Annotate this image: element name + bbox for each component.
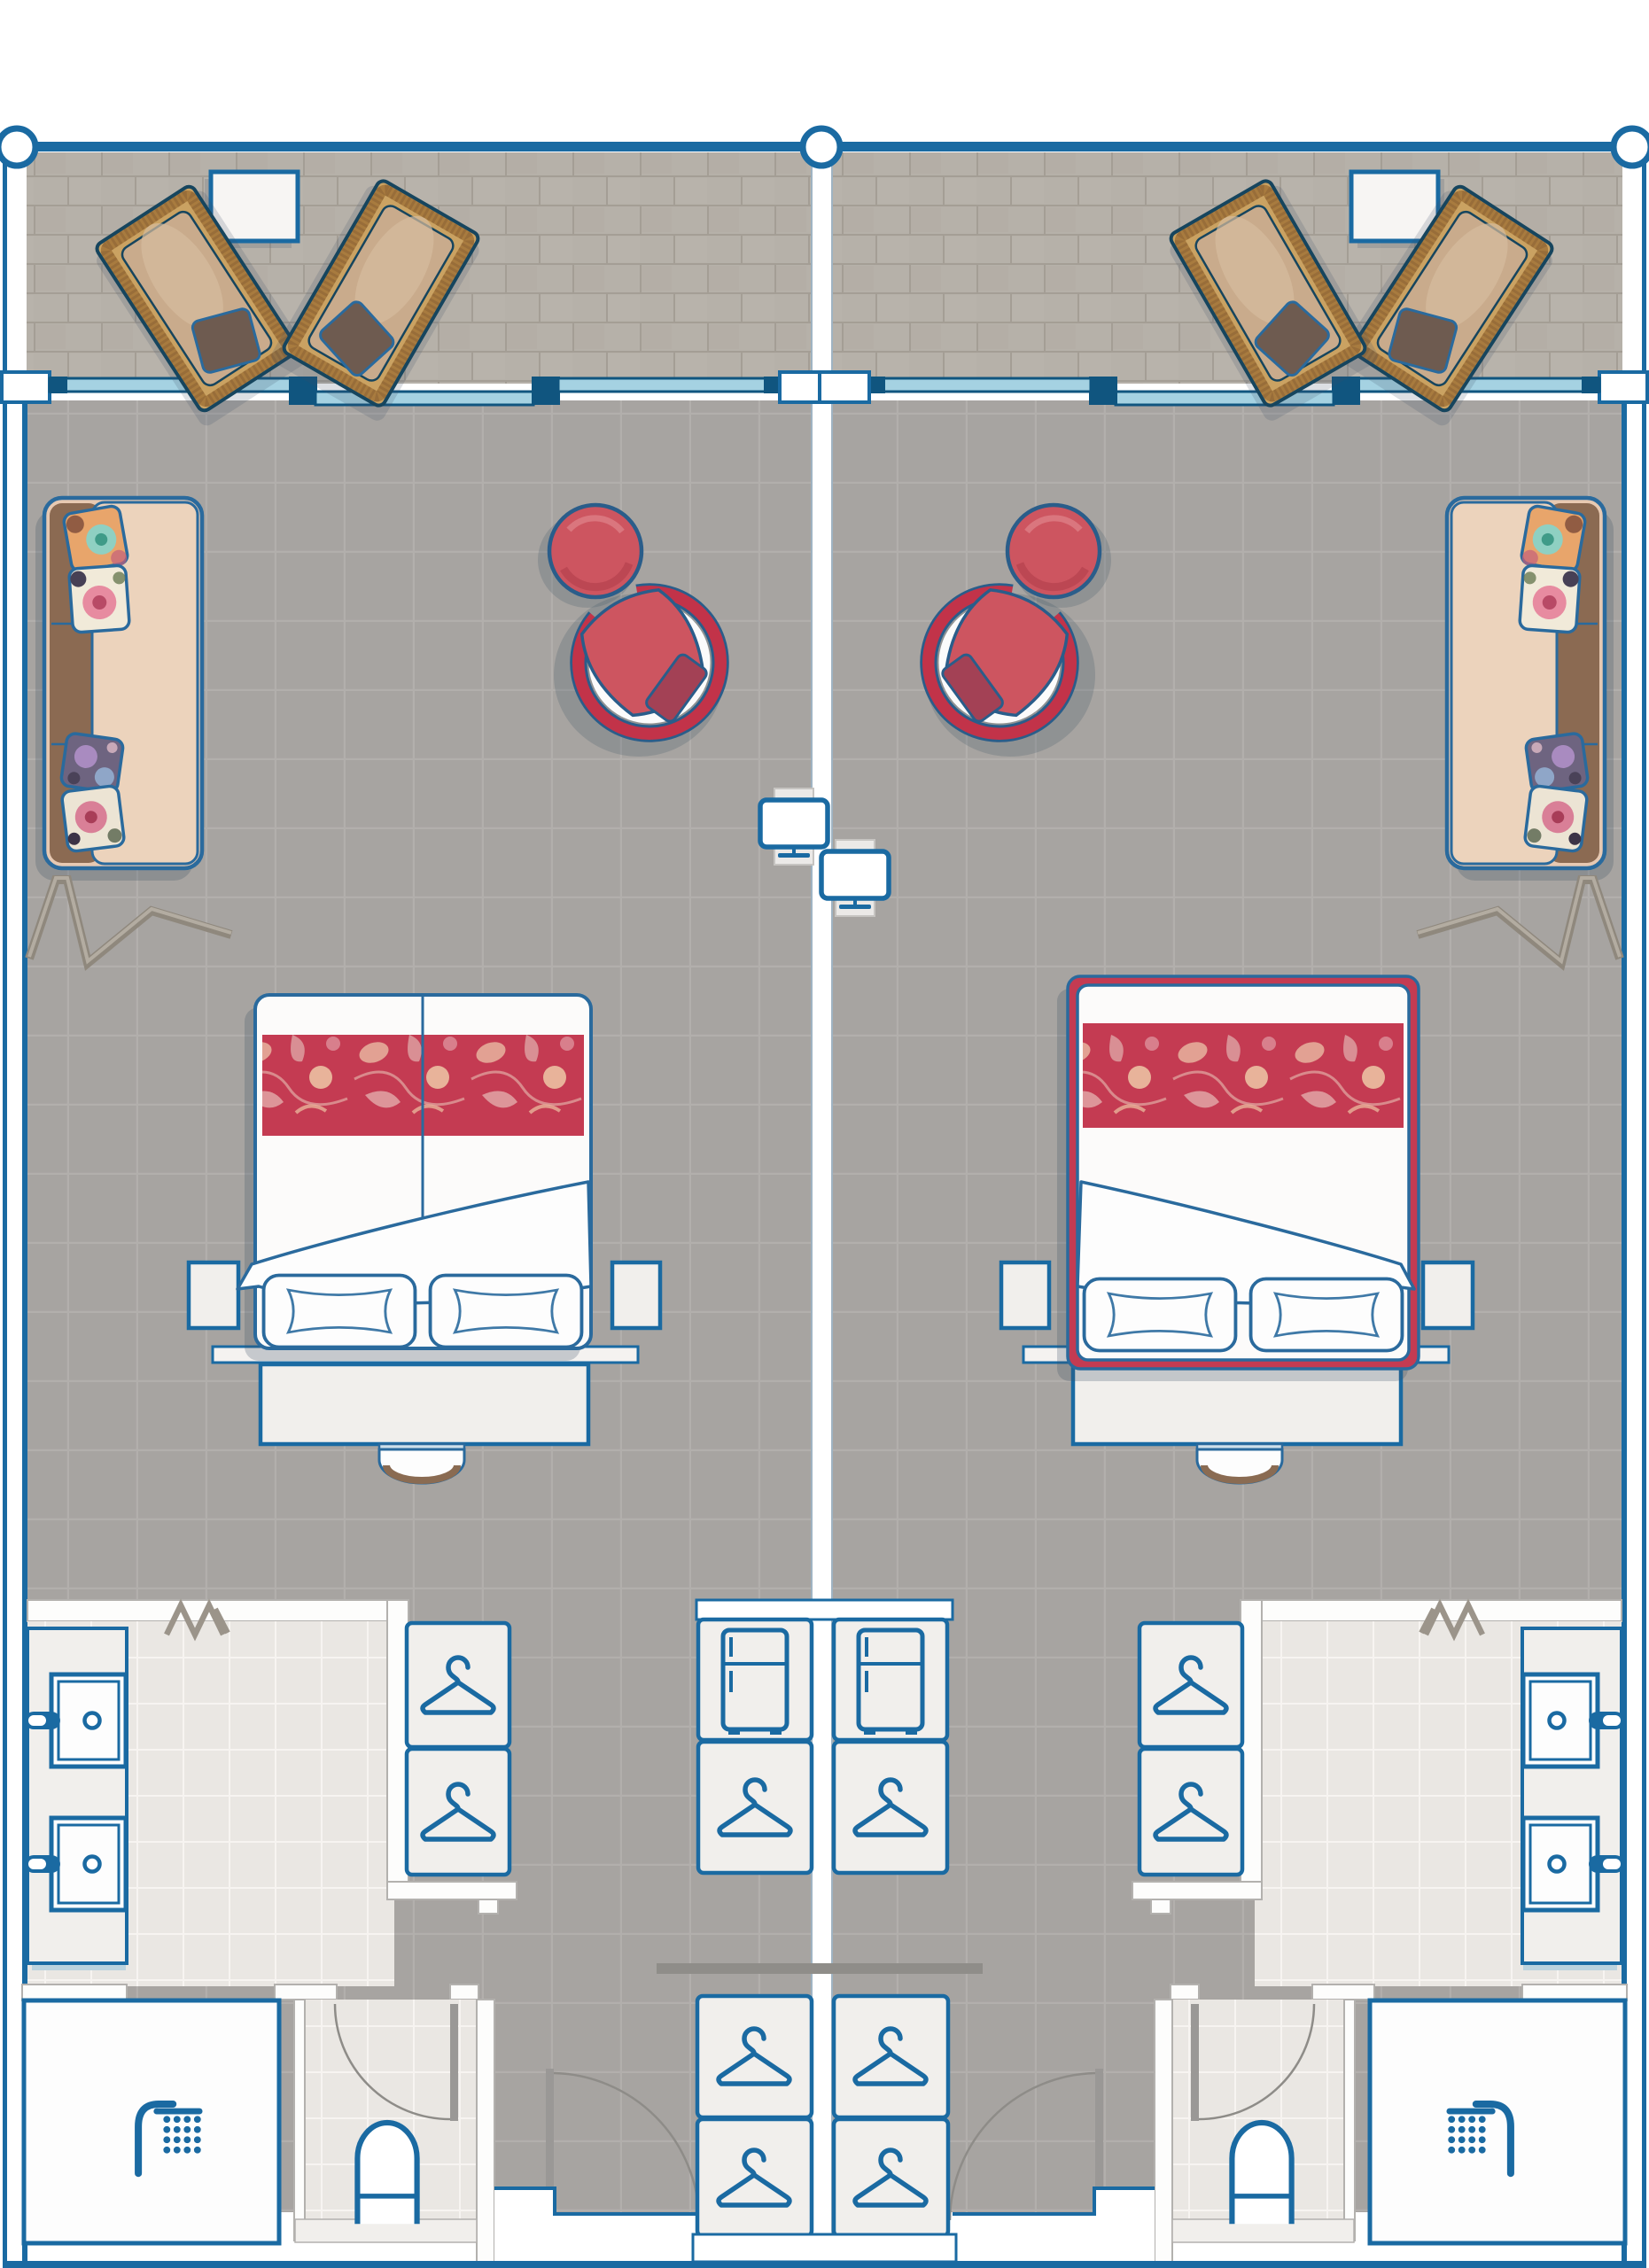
shower-wall-c: [450, 1984, 478, 2000]
entry-nook-bar: [657, 1963, 983, 1974]
nightstand: [612, 1262, 660, 1328]
wardrobe-wall-stub: [387, 1882, 517, 1899]
floor-plan-page: [0, 0, 1649, 2268]
minibar-bay-right: [834, 1619, 947, 1740]
shower-wall-a: [22, 1984, 127, 2000]
floral-pillow-2: [69, 565, 130, 633]
outer-wall-left-outline: [3, 142, 7, 2268]
outer-wall-right-core: [1627, 147, 1642, 2261]
floor-plan-svg: [0, 0, 1649, 2268]
minibar-bay-left: [698, 1619, 812, 1740]
wardrobe-wall-tab: [478, 1899, 498, 1914]
railing-post-right: [1614, 128, 1649, 166]
glass-frame-cap: [50, 377, 67, 393]
glass-track-block: [532, 377, 560, 405]
toilet-wall-left: [294, 2000, 305, 2241]
stool: [379, 1444, 464, 1483]
sofa: [35, 498, 202, 881]
toilet-icon: [357, 2123, 416, 2224]
bottom-step-wall-b: [555, 2212, 697, 2262]
shower-room: [24, 2000, 279, 2243]
minibar-shelf: [696, 1600, 953, 1619]
railing-post-center: [803, 128, 840, 166]
wall-corner-block: [2, 372, 50, 402]
center-dividing-wall: [812, 152, 832, 2261]
console-table: [261, 1364, 588, 1444]
floral-pillow-3: [60, 733, 124, 793]
toilet-icon: [1232, 2123, 1291, 2224]
floral-pillow-4: [61, 785, 125, 851]
entry-closet-base: [693, 2234, 956, 2262]
toilet-door-leaf: [450, 2004, 458, 2121]
red-floral-runner: [1083, 1023, 1404, 1128]
nightstand: [189, 1262, 238, 1328]
toilet-wall-right: [477, 2000, 494, 2262]
bottom-step-wall-a: [494, 2186, 556, 2263]
glass-panel: [558, 378, 782, 392]
bed-left: [237, 995, 591, 1361]
railing-post-left: [0, 128, 35, 166]
outer-wall-right-outline: [1642, 142, 1646, 2268]
outer-wall-left-core: [7, 147, 22, 2261]
bottom-outer-wall: [3, 2261, 1646, 2268]
shower-wall-b: [275, 1984, 337, 2000]
floral-pillow-1: [63, 505, 129, 574]
bed-right: [1057, 976, 1419, 1381]
